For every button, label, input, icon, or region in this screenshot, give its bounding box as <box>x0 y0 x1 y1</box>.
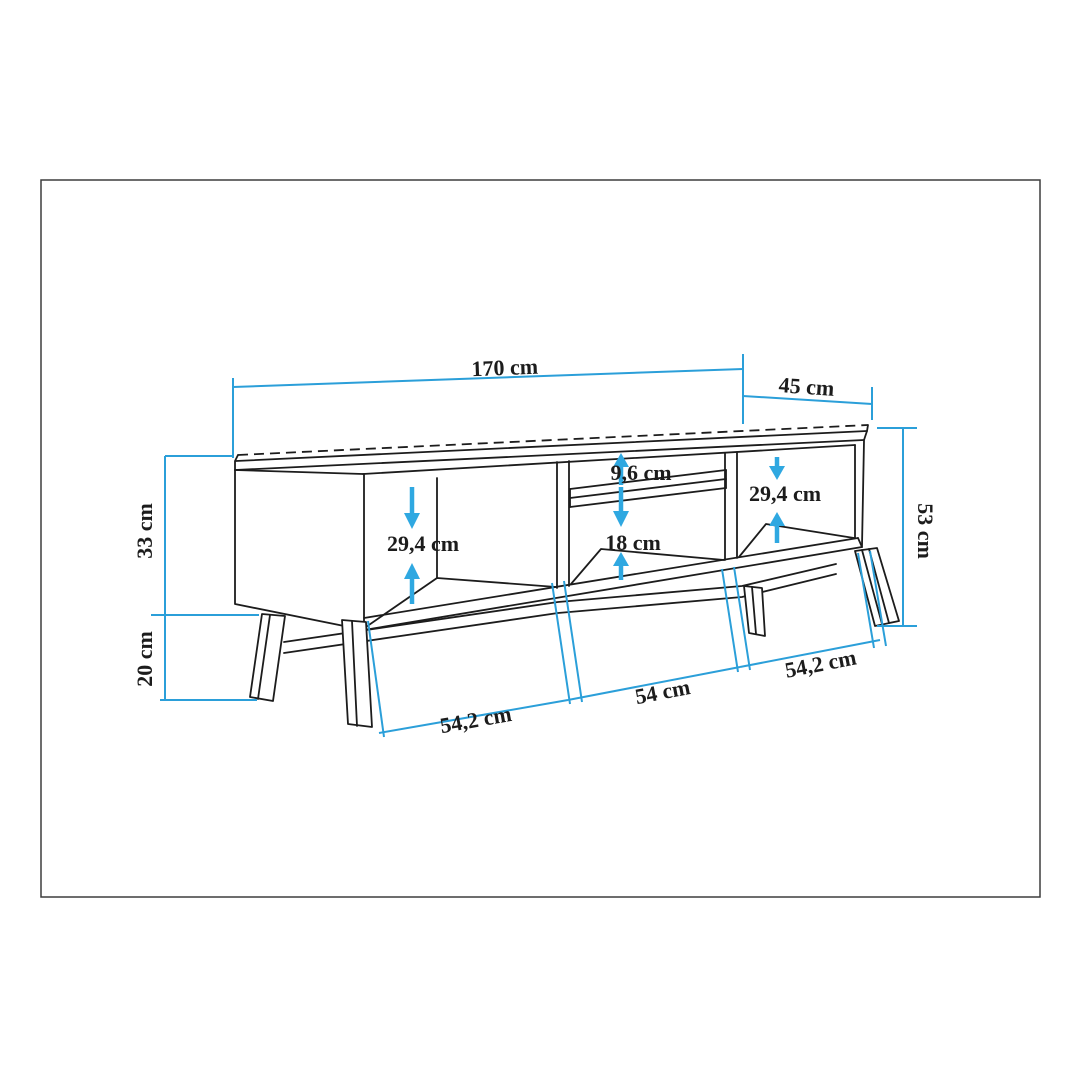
dim-label-leg-height: 20 cm <box>132 631 157 687</box>
dim-label-width: 170 cm <box>471 354 539 382</box>
dim-label-bottom-middle: 54 cm <box>633 674 692 709</box>
dividers <box>557 441 864 588</box>
left-panel-outline <box>235 470 364 630</box>
drawing-border <box>41 180 1040 897</box>
left-panel-top-edge <box>235 470 363 474</box>
arrow-left-opening-up-head <box>404 563 420 579</box>
dim-label-right-opening: 29,4 cm <box>749 481 821 506</box>
top-slab-bottom-edge <box>235 440 864 470</box>
ext-line-bottom-2 <box>722 567 750 672</box>
top-right-corner <box>864 425 868 440</box>
arrow-left-opening-down-head <box>404 513 420 529</box>
arrow-shelf-gap-down-head <box>613 511 629 527</box>
dim-label-bottom-left: 54,2 cm <box>438 701 513 738</box>
tv-stand-dimension-diagram: 170 cm 45 cm 33 cm 20 cm 53 cm 29,4 cm 9… <box>0 0 1080 1080</box>
dim-label-depth: 45 cm <box>778 372 835 401</box>
arrow-right-opening-down-head <box>769 466 785 480</box>
dim-label-shelf-gap: 9,6 cm <box>610 460 671 485</box>
dim-label-total-height: 53 cm <box>913 503 938 559</box>
left-side-panel <box>235 470 364 630</box>
diagram-canvas: 170 cm 45 cm 33 cm 20 cm 53 cm 29,4 cm 9… <box>0 0 1080 1080</box>
right-end-outer-edge <box>862 441 864 546</box>
bottom-band-lower-edge <box>364 547 862 630</box>
top-left-corner <box>235 455 238 470</box>
dim-label-carcass-height: 33 cm <box>132 503 157 559</box>
legs <box>250 548 899 727</box>
dim-label-bottom-right: 54,2 cm <box>783 644 859 682</box>
top-front-edge <box>236 431 867 461</box>
shelf-bottom-edge <box>570 488 726 507</box>
arrow-right-opening-up-head <box>769 512 785 526</box>
dim-label-lower-gap: 18 cm <box>605 530 661 555</box>
dim-label-left-opening: 29,4 cm <box>387 531 459 556</box>
